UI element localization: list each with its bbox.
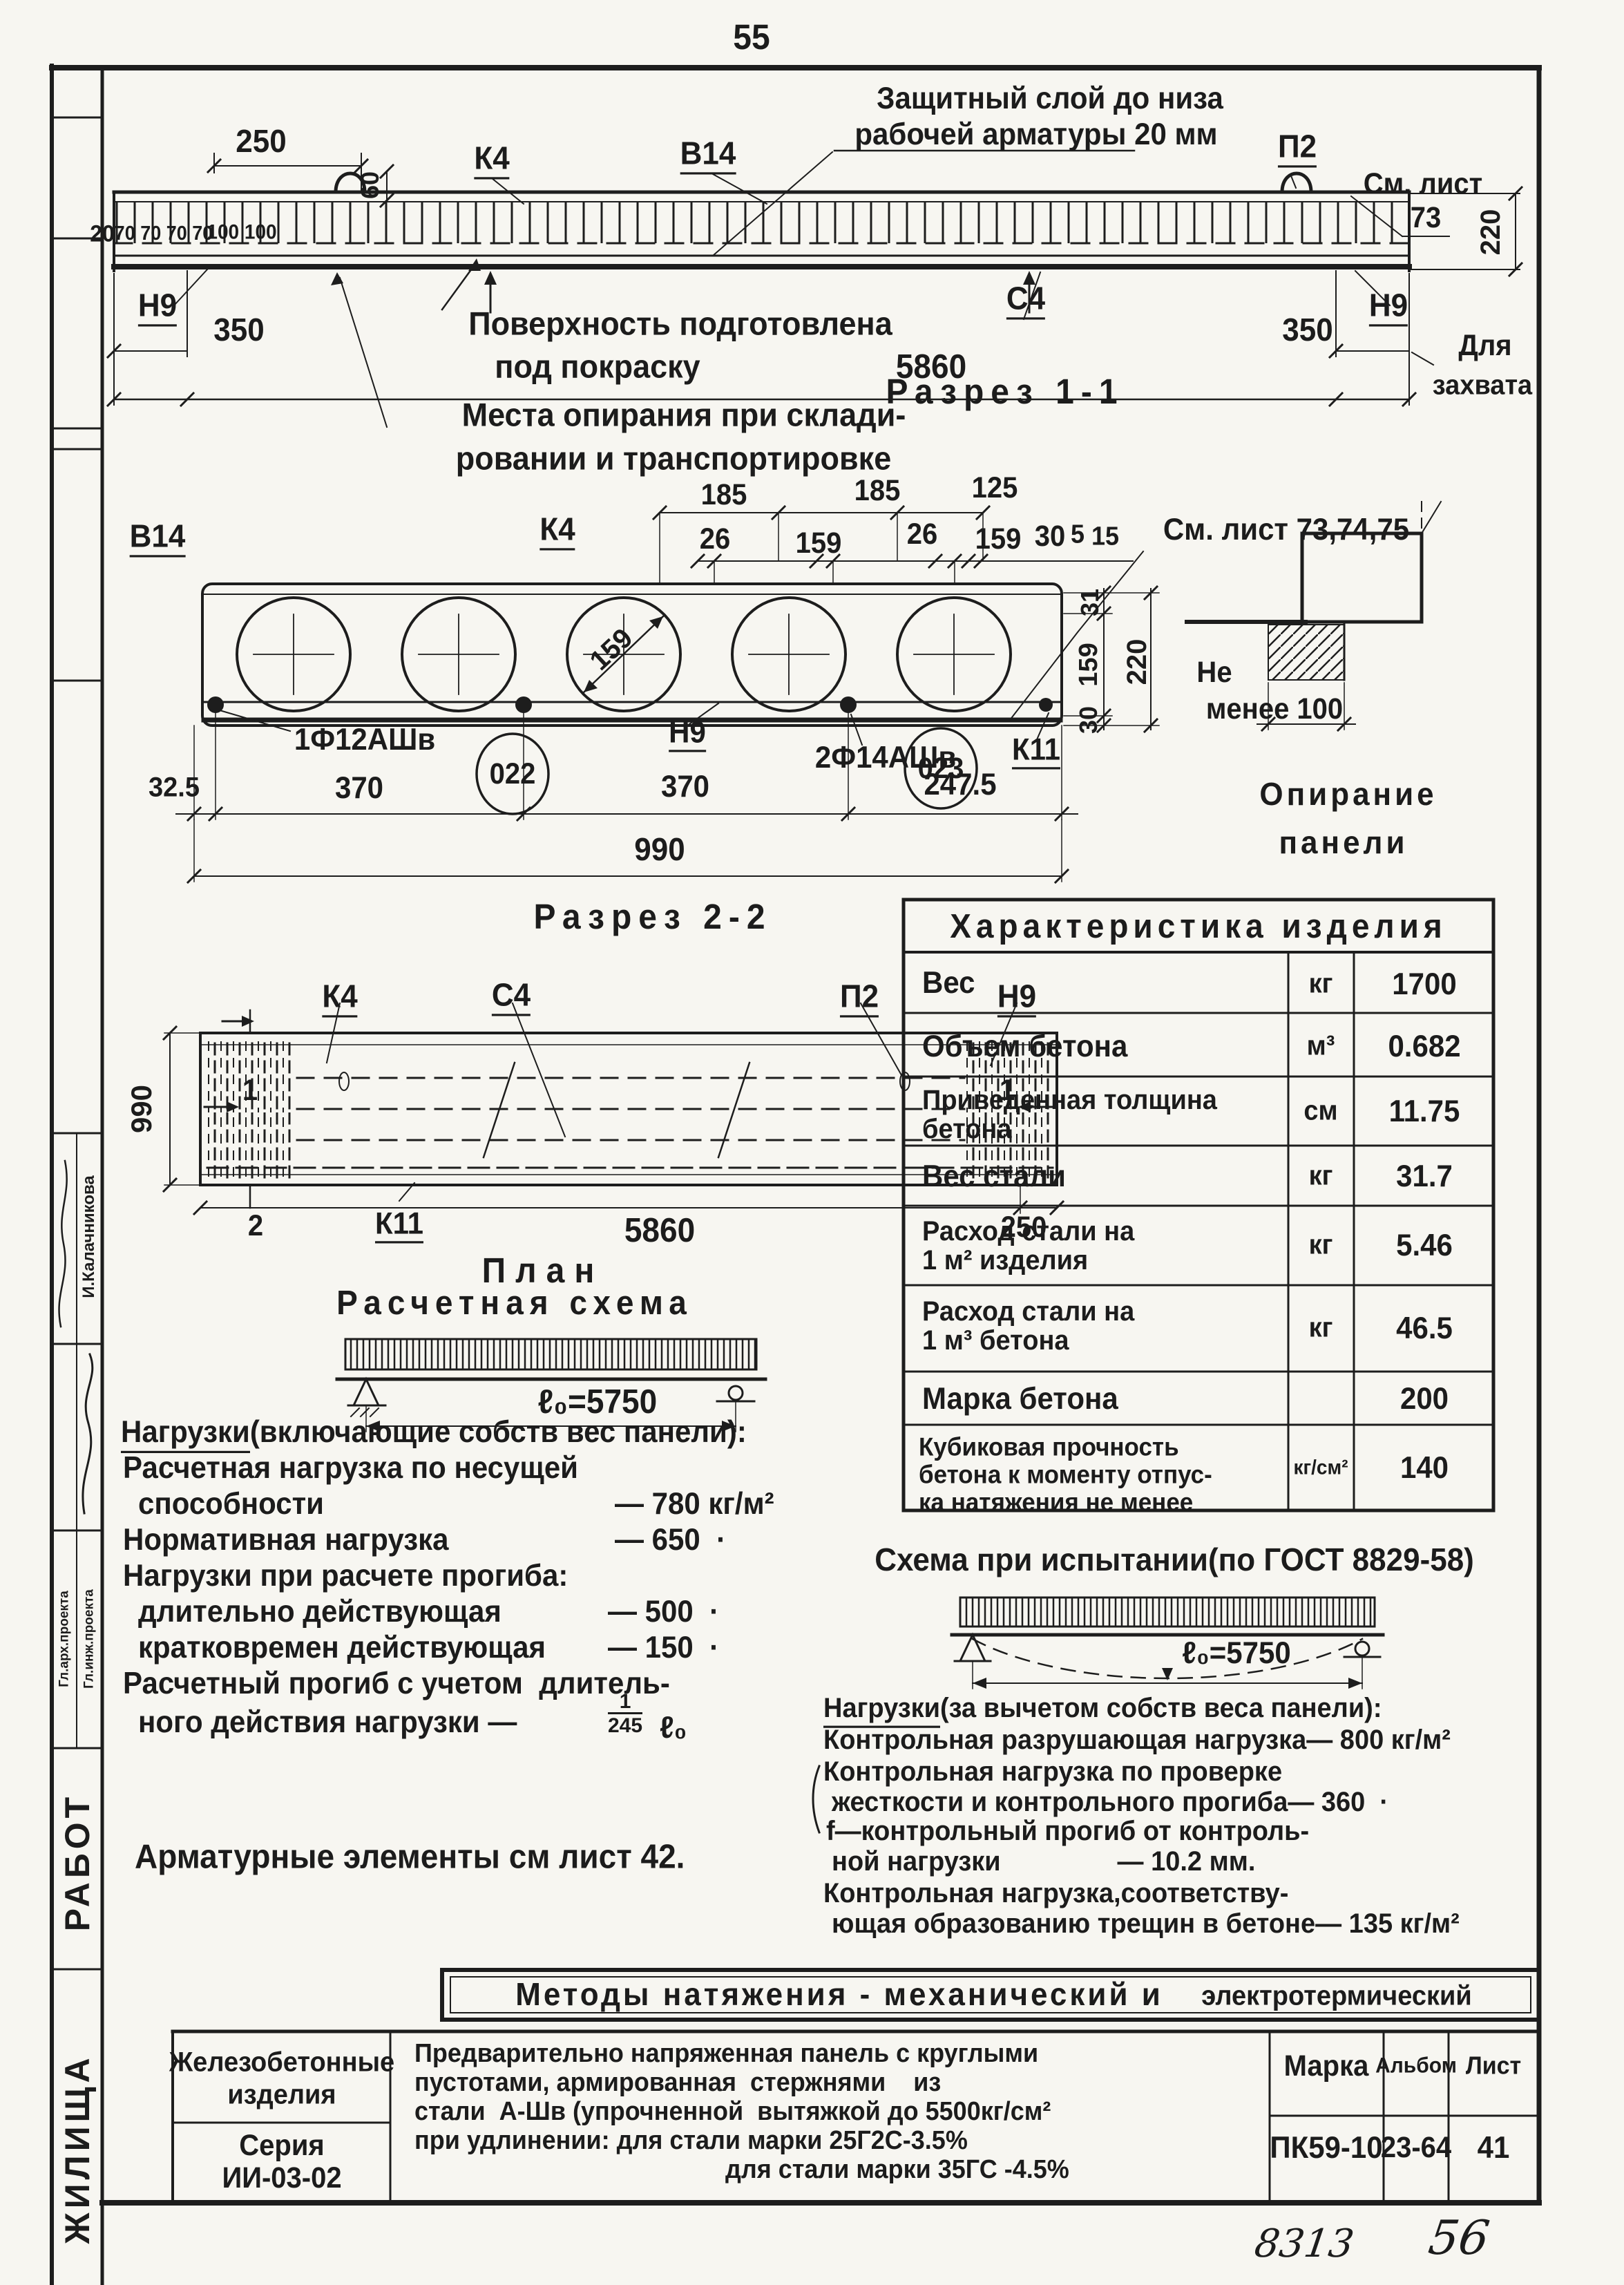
sec-see-sheets: См. лист 73,74,75	[1163, 514, 1409, 545]
stamp-role-engineer: Гл.инж.проекта	[83, 1589, 96, 1689]
char-row-steel-m3-unit: кг	[1309, 1314, 1333, 1342]
elev-dim-20: 20	[90, 222, 115, 245]
test-line1: Нагрузки(за вычетом собств веса панели):	[823, 1694, 1382, 1722]
char-row-steel-m2-name2: 1 м² изделия	[922, 1246, 1088, 1274]
tb-list-label: Лист	[1466, 2054, 1521, 2078]
sec-dim-159a: 159	[796, 529, 842, 558]
char-row-steel-unit: кг	[1309, 1162, 1333, 1190]
stamp-word-zhilishcha: ЖИЛИЩА	[60, 2054, 95, 2244]
elev-dim-250: 250	[236, 126, 286, 158]
tb-description-line5: для стали марки 35ГС -4.5%	[725, 2156, 1069, 2182]
tb-album-value: 23-64	[1381, 2133, 1451, 2162]
sec-label-v14: В14	[130, 521, 186, 558]
plan-dim-990: 990	[127, 1085, 156, 1133]
elev-callout-line2: рабочей арматуры 20 мм	[854, 119, 1217, 150]
plan-label-n9: Н9	[997, 981, 1036, 1018]
calc-line6-label: длительно действующая	[138, 1596, 501, 1627]
calc-span-label: ℓ₀=5750	[538, 1385, 657, 1419]
elev-storage-note-line1: Места опирания при склади-	[462, 398, 906, 431]
sec-dim-26a: 26	[700, 524, 731, 553]
test-line1-keyword: Нагрузки	[823, 1693, 940, 1728]
stamp-engineer-name: И.Калачникова	[81, 1175, 97, 1298]
elev-see-sheet: См. лист	[1364, 169, 1483, 198]
calc-line4-label: Нормативная нагрузка	[123, 1524, 448, 1555]
footer-handwritten-number: 8313	[1252, 2225, 1356, 2264]
char-row-cube-name2: бетона к моменту отпус-	[919, 1462, 1212, 1488]
test-line3: Контрольная нагрузка по проверке	[823, 1758, 1282, 1785]
char-row-steel-m3-name2: 1 м³ бетона	[922, 1327, 1069, 1354]
elev-label-p2: П2	[1278, 131, 1317, 168]
sec-label-n9: Н9	[669, 717, 706, 752]
calc-line5: Нагрузки при расчете прогиба:	[123, 1560, 568, 1591]
elev-label-c4: С4	[1006, 283, 1045, 320]
elev-callout-line1: Защитный слой до низа	[877, 83, 1223, 114]
tb-description-line1: Предварительно напряженная панель с круг…	[414, 2040, 1038, 2066]
sec-bar-1f12: 1Ф12АШв	[294, 724, 435, 755]
calc-line1-rest: (включающие собств вес панели):	[250, 1414, 747, 1449]
tb-description-line2: пустотами, армированная стержнями из	[414, 2069, 941, 2095]
stamp-word-rabot: РАБОТ	[60, 1793, 95, 1931]
elev-see-sheet-number: 73	[1411, 203, 1442, 232]
test-line2: Контрольная разрушающая нагрузка— 800 кг…	[823, 1726, 1451, 1754]
sec-dim-247-5: 247.5	[924, 769, 996, 800]
tb-product-type-line2: изделия	[227, 2081, 336, 2109]
plan-label-p2: П2	[840, 981, 879, 1018]
tb-series-value: ИИ-03-02	[222, 2163, 341, 2192]
char-row-thickness-name1: Приведенная толщина	[922, 1086, 1217, 1114]
char-row-thickness-name2: бетона	[922, 1115, 1012, 1143]
char-row-volume-value: 0.682	[1388, 1031, 1460, 1062]
test-line4: жесткости и контрольного прогиба— 360 ·	[832, 1788, 1388, 1816]
sec-dim-185b: 185	[854, 476, 901, 505]
sec-dim-31: 31	[1078, 589, 1102, 616]
fraction-denominator: 245	[608, 1712, 642, 1736]
tb-description-line3: стали А-Шв (упрочненной вытяжкой до 5500…	[414, 2098, 1051, 2124]
elev-dims-70: 70 70 70 70	[115, 224, 213, 244]
tb-album-label: Альбом	[1375, 2055, 1457, 2077]
elev-label-n9-left: Н9	[138, 290, 177, 327]
cross-section-view	[176, 506, 1159, 882]
calc-line9: ного действия нагрузки —	[138, 1707, 517, 1738]
calc-line3-label: способности	[138, 1488, 324, 1519]
plan-cut-mark-1-left: 1	[242, 1076, 258, 1105]
plan-label-k4: К4	[322, 981, 357, 1018]
fraction-numerator: 1	[608, 1691, 642, 1712]
elev-label-v14: В14	[680, 138, 736, 175]
tb-series-label: Серия	[239, 2131, 325, 2160]
bearing-caption-line2: панели	[1279, 827, 1408, 860]
char-row-thickness-unit: см	[1303, 1097, 1337, 1125]
char-row-steel-m2-value: 5.46	[1396, 1230, 1453, 1261]
tb-marka-value: ПК59-10	[1270, 2132, 1382, 2163]
plan-label-k11: К11	[375, 1208, 423, 1244]
tb-product-type-line1: Железобетонные	[169, 2049, 394, 2076]
tb-description-line4: при удлинении: для стали марки 25Г2С-3.5…	[414, 2127, 968, 2153]
char-row-thickness-value: 11.75	[1389, 1096, 1460, 1127]
calc-line4-value: — 650 ·	[615, 1524, 726, 1555]
elev-dim-350-right: 350	[1282, 314, 1332, 347]
sec-dim-370a: 370	[335, 772, 383, 804]
bearing-caption-line1: Опирание	[1259, 779, 1437, 811]
calc-line7-value: — 150 ·	[608, 1632, 719, 1663]
calc-note: Арматурные элементы см лист 42.	[135, 1839, 685, 1873]
bearing-note-line2: менее 100	[1206, 694, 1343, 723]
test-line7: Контрольная нагрузка,соответству-	[823, 1879, 1288, 1907]
calc-line8: Расчетный прогиб с учетом длитель-	[123, 1668, 670, 1699]
char-row-steel-m2-unit: кг	[1309, 1231, 1333, 1259]
sec-dim-30: 30	[1035, 522, 1066, 551]
tension-methods-banner-part1: Методы натяжения - механический и	[515, 1979, 1163, 2011]
char-row-cube-unit: кг/см²	[1293, 1457, 1348, 1478]
char-row-cube-name1: Кубиковая прочность	[919, 1434, 1179, 1460]
test-line5: f—контрольный прогиб от контроль-	[826, 1817, 1309, 1845]
elev-label-n9-right: Н9	[1369, 290, 1408, 327]
char-row-volume-name: Объем бетона	[922, 1031, 1127, 1062]
elev-label-k4: К4	[474, 143, 509, 180]
elev-dims-100: 100 100	[207, 222, 276, 243]
sec-dim-990: 990	[634, 834, 685, 866]
calc-fraction-tail: ℓ₀	[660, 1712, 687, 1743]
calc-line1-keyword: Нагрузки	[121, 1414, 250, 1453]
char-row-grade-value: 200	[1400, 1383, 1449, 1414]
sec-dim-125: 125	[972, 473, 1018, 502]
char-row-cube-name3: ка натяжения не менее	[919, 1490, 1193, 1515]
drawing-sheet: 55 Защитный слой до низа рабочей арматур…	[0, 0, 1624, 2285]
char-row-steel-value: 31.7	[1396, 1161, 1453, 1192]
elev-storage-note-line2: ровании и транспортировке	[456, 442, 891, 475]
sec-dim-32-5: 32.5	[149, 774, 200, 802]
section-2-2-caption: Разрез 2-2	[533, 900, 772, 936]
sec-dim-370b: 370	[661, 771, 709, 802]
sec-label-k4: К4	[539, 514, 575, 551]
calc-line6-value: — 500 ·	[608, 1596, 719, 1627]
char-row-ves-unit: кг	[1309, 970, 1333, 998]
calc-line7-label: кратковремен действующая	[138, 1632, 546, 1663]
sheet-page-number: 55	[733, 21, 770, 56]
sec-dim-5: 5	[1071, 521, 1085, 547]
sec-dim-right-159: 159	[1076, 643, 1102, 686]
sec-balloon-022: 022	[490, 759, 536, 788]
char-row-grade-name: Марка бетона	[922, 1383, 1118, 1414]
elev-grip-note-line2: захвата	[1433, 372, 1532, 399]
char-row-steel-name: Вес стали	[922, 1161, 1066, 1192]
tb-list-value: 41	[1478, 2132, 1510, 2163]
char-table-title: Характеристика изделия	[950, 909, 1447, 943]
char-row-volume-unit: м³	[1307, 1032, 1335, 1060]
char-row-ves-name: Вес	[922, 967, 975, 998]
elev-surface-note-line2: под покраску	[495, 350, 700, 383]
test-line1-rest: (за вычетом собств веса панели):	[940, 1693, 1382, 1724]
sec-dim-159b: 159	[975, 524, 1022, 553]
sec-dim-15: 15	[1091, 523, 1119, 549]
char-row-steel-m2-name1: Расход стали на	[922, 1217, 1134, 1245]
elev-grip-note-line1: Для	[1458, 331, 1511, 360]
sec-dim-185a: 185	[701, 480, 747, 509]
section-1-1-caption: Разрез 1-1	[886, 375, 1124, 410]
plan-label-c4: С4	[492, 980, 531, 1016]
test-line6: ной нагрузки — 10.2 мм.	[832, 1848, 1255, 1875]
char-row-steel-m3-value: 46.5	[1396, 1313, 1453, 1344]
sec-label-k11: К11	[1012, 734, 1060, 770]
char-row-ves-value: 1700	[1392, 969, 1456, 1000]
sec-dim-right-30: 30	[1076, 706, 1101, 734]
tension-methods-banner-part2: электротермический	[1201, 1982, 1471, 2010]
bearing-note-line1: Не	[1196, 658, 1232, 687]
sec-dim-right-220: 220	[1123, 639, 1151, 685]
footer-handwritten-page: 56	[1426, 2215, 1492, 2262]
elev-surface-note-line1: Поверхность подготовлена	[468, 307, 892, 340]
calc-scheme-title: Расчетная схема	[336, 1286, 693, 1320]
test-span-label: ℓ₀=5750	[1182, 1638, 1290, 1669]
elevation-view	[108, 151, 1522, 427]
test-scheme-title: Схема при испытании(по ГОСТ 8829-58)	[875, 1544, 1474, 1577]
char-row-cube-value: 140	[1400, 1452, 1449, 1483]
tb-marka-label: Марка	[1284, 2051, 1369, 2080]
elev-dim-60: 60	[358, 171, 383, 199]
char-row-steel-m3-name1: Расход стали на	[922, 1298, 1134, 1325]
calc-line3-value: — 780 кг/м²	[615, 1488, 774, 1519]
calc-line2: Расчетная нагрузка по несущей	[123, 1452, 578, 1483]
elev-dim-220: 220	[1477, 209, 1504, 256]
test-line8: ющая образованию трещин в бетоне— 135 кг…	[832, 1910, 1460, 1937]
plan-cut-mark-2: 2	[248, 1211, 263, 1240]
plan-dim-5860: 5860	[624, 1213, 695, 1247]
calc-line1: Нагрузки(включающие собств вес панели):	[121, 1416, 747, 1448]
sec-dim-26b: 26	[907, 520, 938, 549]
calc-deflection-fraction: 1 245	[608, 1691, 642, 1736]
stamp-role-architect: Гл.арх.проекта	[58, 1591, 71, 1687]
elev-dim-350-left: 350	[213, 314, 264, 347]
